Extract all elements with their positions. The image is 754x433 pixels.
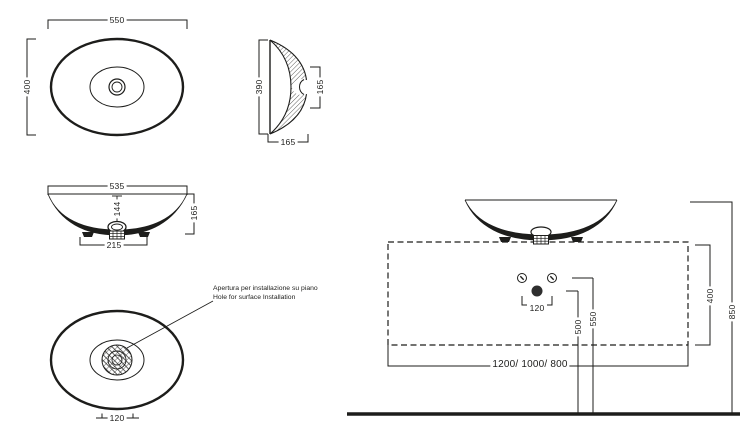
installation-note-english: Hole for surface Installation — [213, 294, 318, 303]
dim-line-drain-height — [566, 291, 578, 414]
technical-drawing-canvas: 550 400 390 165 165 535 144 165 215 120 … — [0, 0, 754, 433]
dim-label-counter-widths: 1200/ 1000/ 800 — [490, 360, 569, 370]
dim-label-rim-height: 850 — [728, 303, 737, 322]
install-drain-body — [534, 236, 549, 245]
dim-label-inner-depth: 144 — [113, 200, 122, 219]
screw-hole-icon-right — [548, 274, 557, 283]
front-left-foot — [82, 232, 94, 237]
basin-bottom-outline — [90, 67, 144, 107]
drain-hole-dot — [532, 286, 543, 297]
dim-line-tap-height — [572, 278, 593, 414]
dim-line-rim-height — [690, 202, 732, 414]
dim-label-bowl-inner-height: 165 — [316, 78, 325, 97]
dim-label-hole-diameter: 120 — [108, 414, 127, 423]
dim-label-counter-depth: 400 — [706, 287, 715, 306]
dim-label-front-width: 535 — [108, 182, 127, 191]
drain-icon-inner — [112, 82, 122, 92]
installation-note: Apertura per installazione su piano Hole… — [213, 285, 318, 302]
front-drain-body — [110, 231, 125, 239]
dim-label-top-width: 550 — [108, 16, 127, 25]
screw-hole-icon-left — [518, 274, 527, 283]
install-right-foot — [571, 237, 583, 242]
front-right-foot — [138, 232, 150, 237]
dim-label-section-width: 390 — [255, 78, 264, 97]
dim-label-tap-holes-spacing: 120 — [528, 304, 547, 313]
basin-outer-rim — [51, 39, 183, 135]
dim-label-tap-height: 550 — [589, 310, 598, 329]
dim-label-front-height: 165 — [190, 204, 199, 223]
dim-label-drain-height: 500 — [574, 318, 583, 337]
side-section-view — [259, 40, 320, 142]
install-left-foot — [499, 237, 511, 242]
note-leader-line — [127, 301, 213, 348]
installation-note-italian: Apertura per installazione su piano — [213, 285, 318, 294]
drain-icon — [109, 79, 125, 95]
dim-label-top-depth: 400 — [23, 78, 32, 97]
bottom-view — [51, 301, 213, 418]
dim-label-base-width: 215 — [105, 241, 124, 250]
top-view — [27, 20, 187, 135]
surface-hole-hatched — [102, 345, 132, 375]
dim-label-section-height: 165 — [279, 138, 298, 147]
